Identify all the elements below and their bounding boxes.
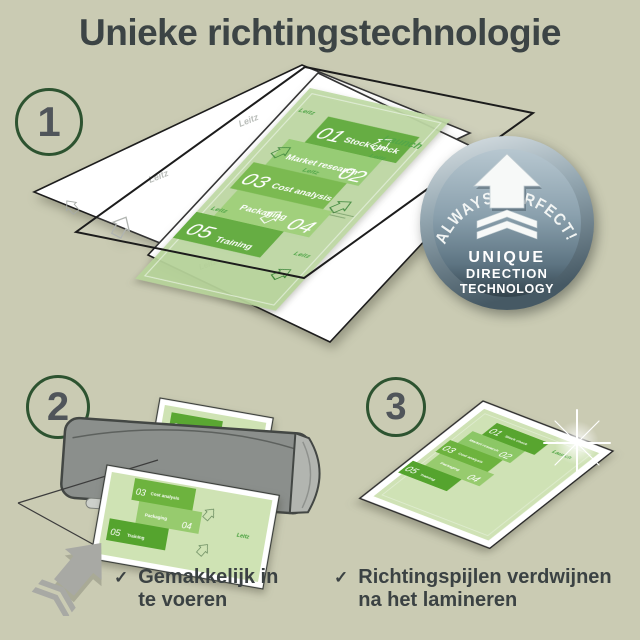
checklist-line: Gemakkelijk in (138, 566, 278, 588)
step1-illustration: Leitz Leitz Leitz 01 Stock check (0, 55, 640, 367)
badge-line-direction: DIRECTION (466, 266, 548, 281)
always-perfect-badge: ALWAYS PERFECT! UNIQUE DIRECTION TECHNOL… (420, 136, 594, 310)
exiting-band-03-number: 03 (135, 486, 147, 498)
checklist-line: te voeren (138, 589, 227, 611)
exiting-band-04-number: 04 (181, 520, 193, 532)
badge-line-unique: UNIQUE (468, 249, 545, 266)
badge-line-technology: TECHNOLOGY (460, 282, 554, 296)
page-title: Unieke richtingstechnologie (0, 12, 640, 54)
checklist-line: na het lamineren (358, 589, 517, 611)
checklist-item-easy-feed: ✓ Gemakkelijk in te voeren (114, 566, 278, 612)
checklist-item-arrows-disappear: ✓ Richtingspijlen verdwijnen na het lami… (334, 566, 612, 612)
checkmark-icon: ✓ (114, 566, 128, 612)
checklist-text: Richtingspijlen verdwijnen na het lamine… (358, 566, 611, 612)
checkmark-icon: ✓ (334, 566, 348, 612)
checklist-text: Gemakkelijk in te voeren (138, 566, 278, 612)
machine-end-cap (290, 433, 323, 515)
checklist-line: Richtingspijlen verdwijnen (358, 566, 611, 588)
infographic-canvas: Unieke richtingstechnologie 1 2 3 (0, 0, 640, 640)
